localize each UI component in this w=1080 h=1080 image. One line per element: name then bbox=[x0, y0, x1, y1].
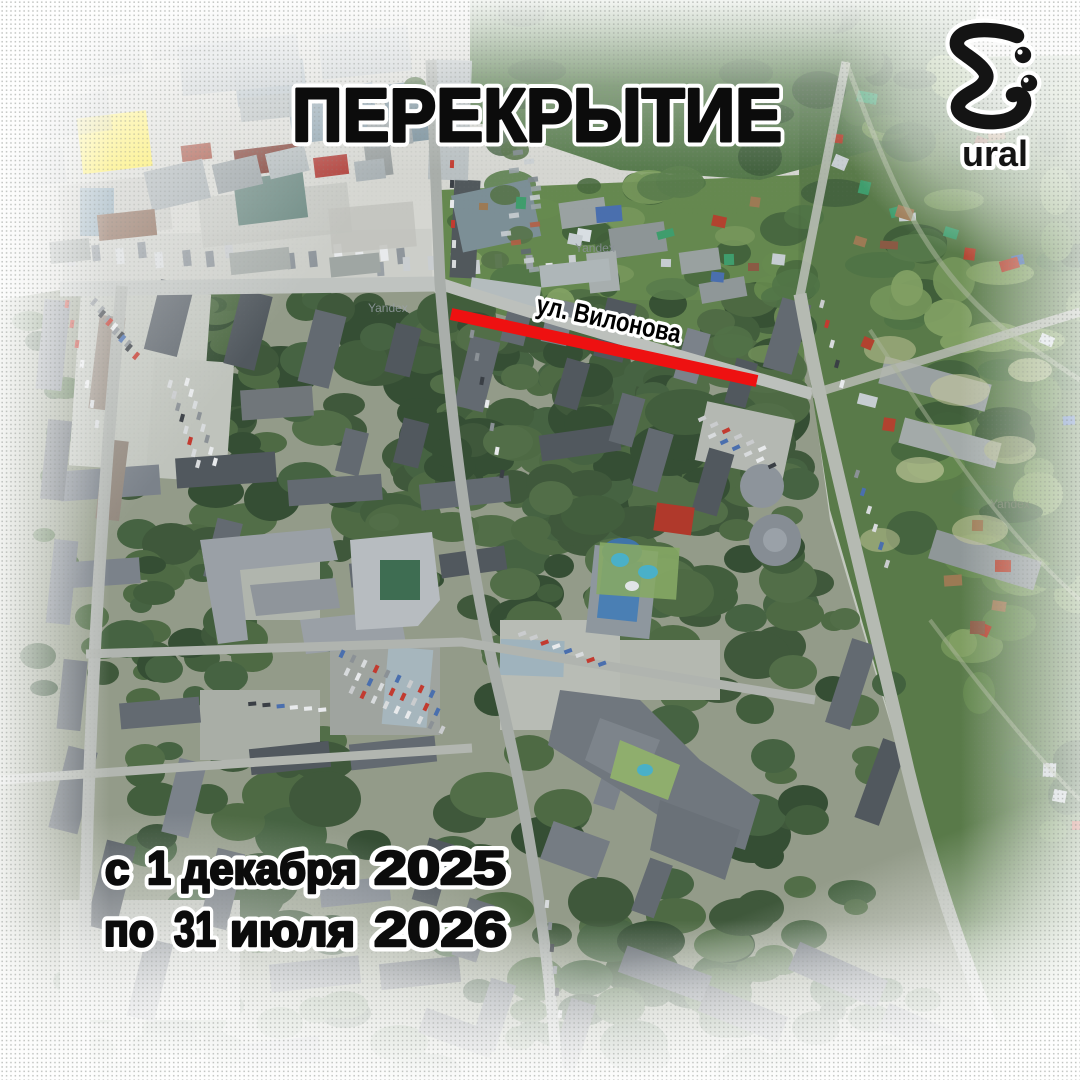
svg-text:Yandex: Yandex bbox=[575, 241, 615, 255]
svg-text:1: 1 bbox=[147, 841, 171, 894]
svg-text:ПЕРЕКРЫТИЕ: ПЕРЕКРЫТИЕ bbox=[292, 73, 782, 157]
svg-text:ural: ural bbox=[962, 133, 1028, 174]
svg-text:31: 31 bbox=[174, 903, 216, 957]
svg-text:июля: июля bbox=[230, 905, 355, 956]
svg-text:Yandex: Yandex bbox=[990, 497, 1030, 511]
svg-text:2025: 2025 bbox=[374, 841, 506, 894]
svg-text:с: с bbox=[105, 845, 129, 894]
svg-text:2026: 2026 bbox=[374, 903, 507, 957]
svg-text:декабря: декабря bbox=[182, 845, 357, 894]
svg-text:Yandex: Yandex bbox=[368, 301, 408, 315]
svg-text:по: по bbox=[104, 905, 154, 956]
